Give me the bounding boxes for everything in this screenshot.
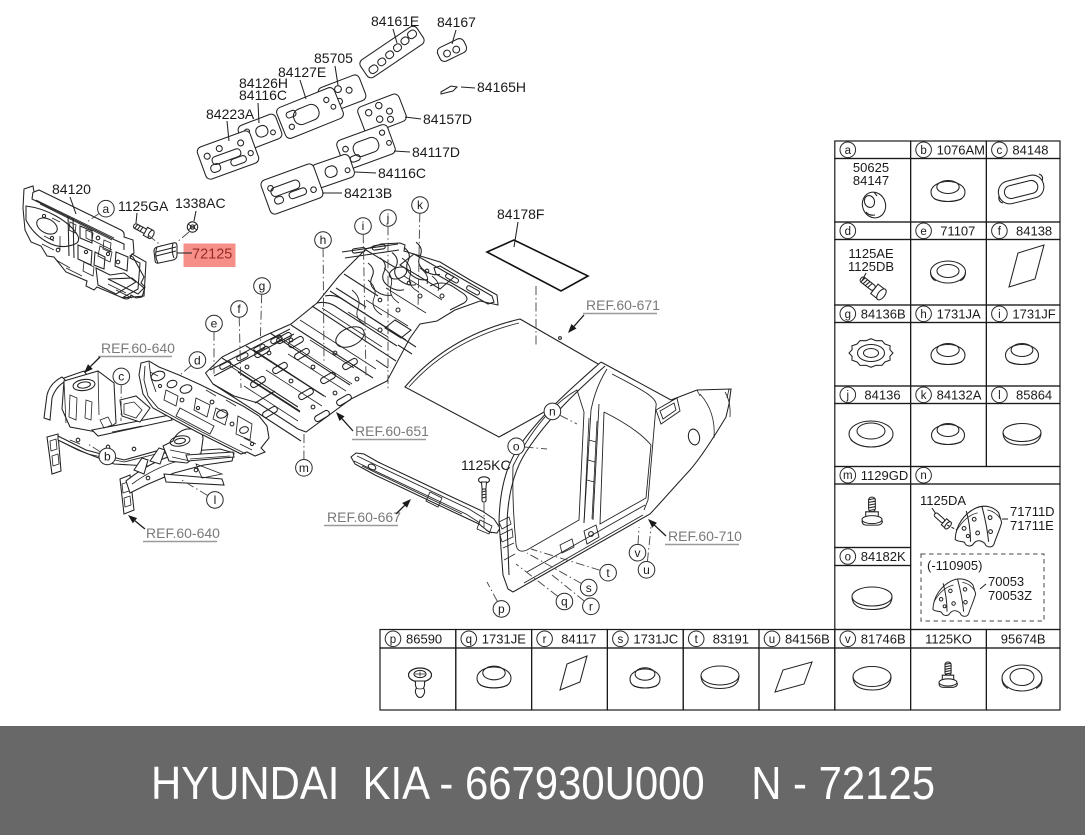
svg-text:q: q [561,595,568,609]
svg-text:85864: 85864 [1012,387,1052,402]
svg-text:71107: 71107 [937,223,976,238]
svg-text:r: r [543,634,547,646]
svg-text:g: g [259,279,266,293]
svg-text:1125KC: 1125KC [461,457,511,473]
svg-text:84117D: 84117D [412,144,460,160]
svg-text:h: h [320,233,327,247]
svg-text:p: p [498,602,505,616]
svg-text:95674B: 95674B [1001,632,1046,647]
svg-text:c: c [118,370,124,384]
svg-text:81746B: 81746B [861,632,906,647]
svg-text:j: j [386,211,390,225]
svg-text:84147: 84147 [853,173,889,188]
svg-text:j: j [846,390,850,402]
svg-text:84120: 84120 [52,181,91,197]
svg-text:REF.60-651: REF.60-651 [355,423,429,439]
svg-text:m: m [299,461,309,475]
svg-text:h: h [920,309,926,321]
svg-text:72125: 72125 [192,247,232,263]
svg-text:71711D: 71711D [1010,504,1055,519]
svg-text:e: e [211,317,218,331]
svg-text:1125KO: 1125KO [925,632,972,647]
svg-text:84116C: 84116C [239,87,287,103]
svg-text:84136B: 84136B [861,306,906,321]
svg-text:d: d [845,226,851,238]
svg-text:c: c [997,145,1003,157]
svg-text:84167: 84167 [437,14,476,30]
svg-text:REF.60-640: REF.60-640 [101,340,175,356]
svg-text:70053: 70053 [988,574,1024,589]
svg-text:s: s [618,634,624,646]
svg-text:e: e [920,226,926,238]
svg-text:1129GD: 1129GD [861,468,908,483]
svg-text:b: b [920,145,926,157]
svg-text:REF.60-671: REF.60-671 [586,297,660,313]
svg-text:HYUNDAI KIA - 667930U000 N: HYUNDAI KIA - 667930U000 N - 72125 [151,757,935,809]
svg-text:84157D: 84157D [423,111,472,127]
svg-text:84182K: 84182K [861,549,906,564]
svg-text:1125DB: 1125DB [848,259,894,274]
svg-text:REF.60-667: REF.60-667 [327,509,401,525]
svg-text:u: u [643,563,650,577]
svg-text:84178F: 84178F [497,206,544,222]
svg-text:84132A: 84132A [937,387,982,402]
svg-text:83191: 83191 [709,632,749,647]
svg-text:84136: 84136 [861,387,901,402]
svg-text:b: b [104,450,111,464]
svg-text:1731JA: 1731JA [937,306,981,321]
svg-text:1731JC: 1731JC [633,632,678,647]
svg-text:v: v [635,546,641,560]
svg-text:p: p [390,634,396,646]
svg-text:r: r [589,600,593,614]
svg-text:84148: 84148 [1012,142,1048,157]
svg-text:1731JF: 1731JF [1012,306,1055,321]
svg-text:84138: 84138 [1012,223,1052,238]
svg-text:71711E: 71711E [1010,518,1054,533]
svg-text:n: n [549,405,556,419]
svg-text:1338AC: 1338AC [175,195,226,211]
svg-text:o: o [513,440,520,454]
svg-text:84165H: 84165H [477,79,526,95]
svg-text:l: l [214,493,217,507]
svg-text:k: k [921,390,927,402]
svg-text:q: q [466,634,472,646]
svg-text:i: i [362,219,365,233]
svg-text:v: v [845,634,851,646]
svg-text:1731JE: 1731JE [482,632,526,647]
svg-text:d: d [194,353,201,367]
svg-text:a: a [845,145,852,157]
svg-text:70053Z: 70053Z [988,588,1032,603]
svg-text:84117: 84117 [558,632,597,647]
svg-text:REF.60-640: REF.60-640 [146,525,220,541]
svg-text:u: u [769,634,775,646]
svg-text:s: s [586,581,592,595]
svg-text:i: i [998,309,1001,321]
svg-text:86590: 86590 [406,632,442,647]
svg-text:1125DA: 1125DA [920,493,966,508]
svg-text:m: m [843,470,853,482]
svg-text:1125GA: 1125GA [118,198,169,214]
svg-text:k: k [417,198,424,212]
svg-text:g: g [845,309,851,321]
svg-text:n: n [920,470,926,482]
svg-text:REF.60-710: REF.60-710 [668,528,742,544]
svg-text:1076AM: 1076AM [937,142,985,157]
svg-text:l: l [998,390,1001,402]
svg-text:o: o [845,552,851,564]
svg-text:(-110905): (-110905) [927,558,982,573]
svg-text:84116C: 84116C [378,165,426,181]
svg-text:84213B: 84213B [344,185,392,201]
svg-text:a: a [103,202,110,216]
svg-text:84223A: 84223A [206,106,255,122]
svg-text:84156B: 84156B [785,632,830,647]
svg-text:84161E: 84161E [371,13,419,29]
